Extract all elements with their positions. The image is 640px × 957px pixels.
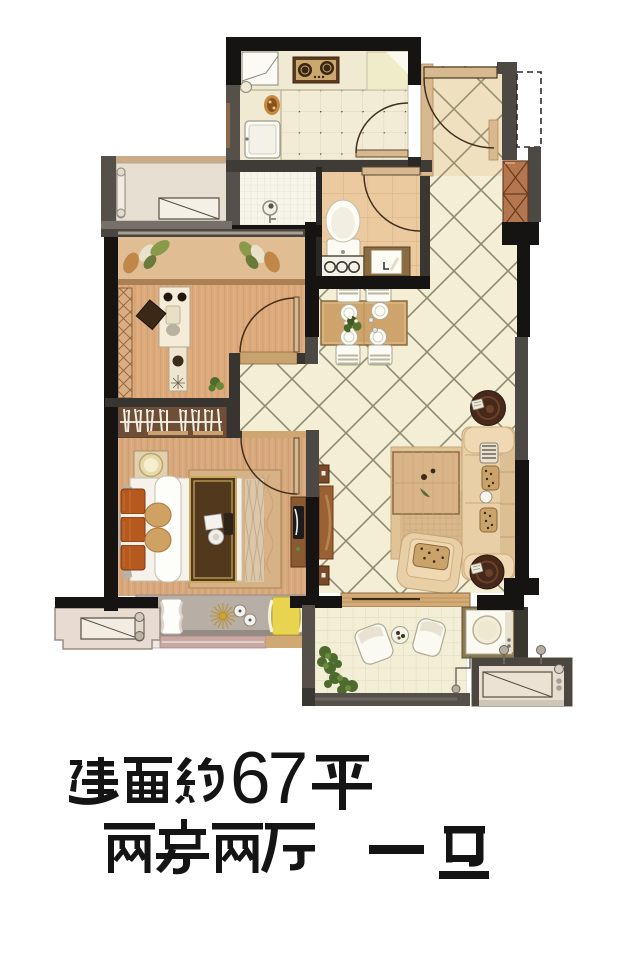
- svg-text:67: 67: [230, 738, 305, 819]
